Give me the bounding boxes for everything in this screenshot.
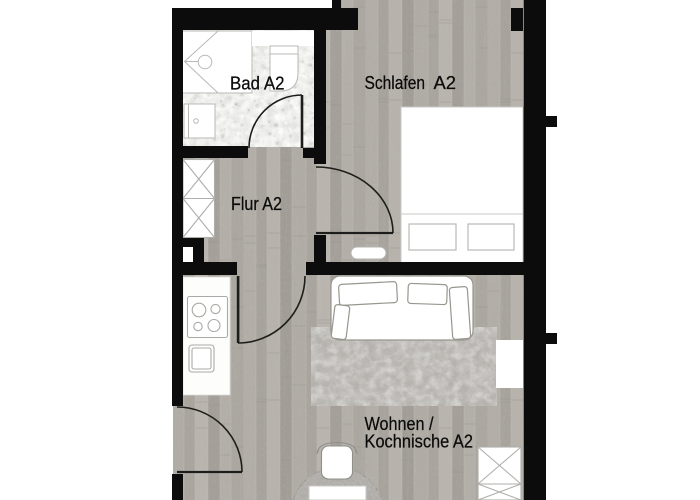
svg-text:Bad A2: Bad A2 (230, 74, 285, 94)
svg-text:A2: A2 (434, 73, 457, 93)
svg-text:Schlafen: Schlafen (365, 73, 426, 93)
svg-text:Flur A2: Flur A2 (231, 194, 282, 214)
svg-text:Kochnische A2: Kochnische A2 (365, 432, 474, 452)
